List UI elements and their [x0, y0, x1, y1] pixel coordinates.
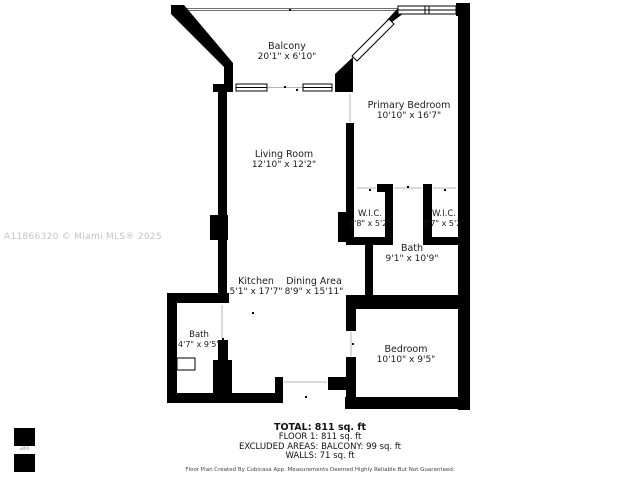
- room-label-bath-main: Bath 9'1" x 10'9": [386, 243, 439, 265]
- room-label-primary-bedroom: Primary Bedroom 10'10" x 16'7": [368, 100, 451, 122]
- room-dims: 10'10" x 9'5": [377, 355, 436, 366]
- room-label-kitchen: Kitchen 5'1" x 17'7": [230, 276, 283, 298]
- brand-logo: ⌂PIX: [14, 428, 35, 472]
- room-label-living-room: Living Room 12'10" x 12'2": [252, 149, 316, 171]
- sink-fixture: [177, 358, 195, 370]
- room-dims: 5'1" x 17'7": [230, 287, 283, 298]
- room-name: Living Room: [252, 149, 316, 160]
- room-name: W.I.C.: [349, 209, 391, 219]
- room-label-bedroom: Bedroom 10'10" x 9'5": [377, 344, 436, 366]
- logo-text: ⌂PIX: [14, 446, 35, 454]
- room-dims: 9'1" x 10'9": [386, 254, 439, 265]
- room-label-balcony: Balcony 20'1" x 6'10": [258, 41, 317, 63]
- logo-block-bottom: [14, 454, 35, 472]
- room-label-wic-right: W.I.C. 3'7" x 5'2": [423, 209, 465, 229]
- floor-plan-page: { "watermark": "A11866320 © Miami MLS® 2…: [0, 0, 640, 480]
- room-name: Primary Bedroom: [368, 100, 451, 111]
- walls-area: WALLS: 71 sq. ft: [0, 452, 640, 462]
- room-name: Bath: [178, 330, 220, 340]
- room-dims: 4'7" x 9'5": [178, 340, 220, 350]
- room-dims: 10'10" x 16'7": [368, 111, 451, 122]
- room-label-wic-left: W.I.C. 3'8" x 5'2": [349, 209, 391, 229]
- logo-block-top: [14, 428, 35, 446]
- disclaimer-text: Floor Plan Created By Cubicasa App. Meas…: [0, 467, 640, 474]
- mls-watermark: A11866320 © Miami MLS® 2025: [4, 232, 162, 242]
- balcony-door-leaf: [352, 19, 394, 61]
- room-name: Balcony: [258, 41, 317, 52]
- room-dims: 20'1" x 6'10": [258, 52, 317, 63]
- room-dims: 12'10" x 12'2": [252, 160, 316, 171]
- room-name: Kitchen: [230, 276, 283, 287]
- room-dims: 8'9" x 15'11": [285, 287, 344, 298]
- room-label-dining-area: Dining Area 8'9" x 15'11": [285, 276, 344, 298]
- room-name: Bath: [386, 243, 439, 254]
- room-name: Bedroom: [377, 344, 436, 355]
- room-dims: 3'7" x 5'2": [423, 219, 465, 229]
- room-name: Dining Area: [285, 276, 344, 287]
- room-name: W.I.C.: [423, 209, 465, 219]
- room-label-bath-small: Bath 4'7" x 9'5": [178, 330, 220, 350]
- room-dims: 3'8" x 5'2": [349, 219, 391, 229]
- area-summary: TOTAL: 811 sq. ft FLOOR 1: 811 sq. ft EX…: [0, 422, 640, 474]
